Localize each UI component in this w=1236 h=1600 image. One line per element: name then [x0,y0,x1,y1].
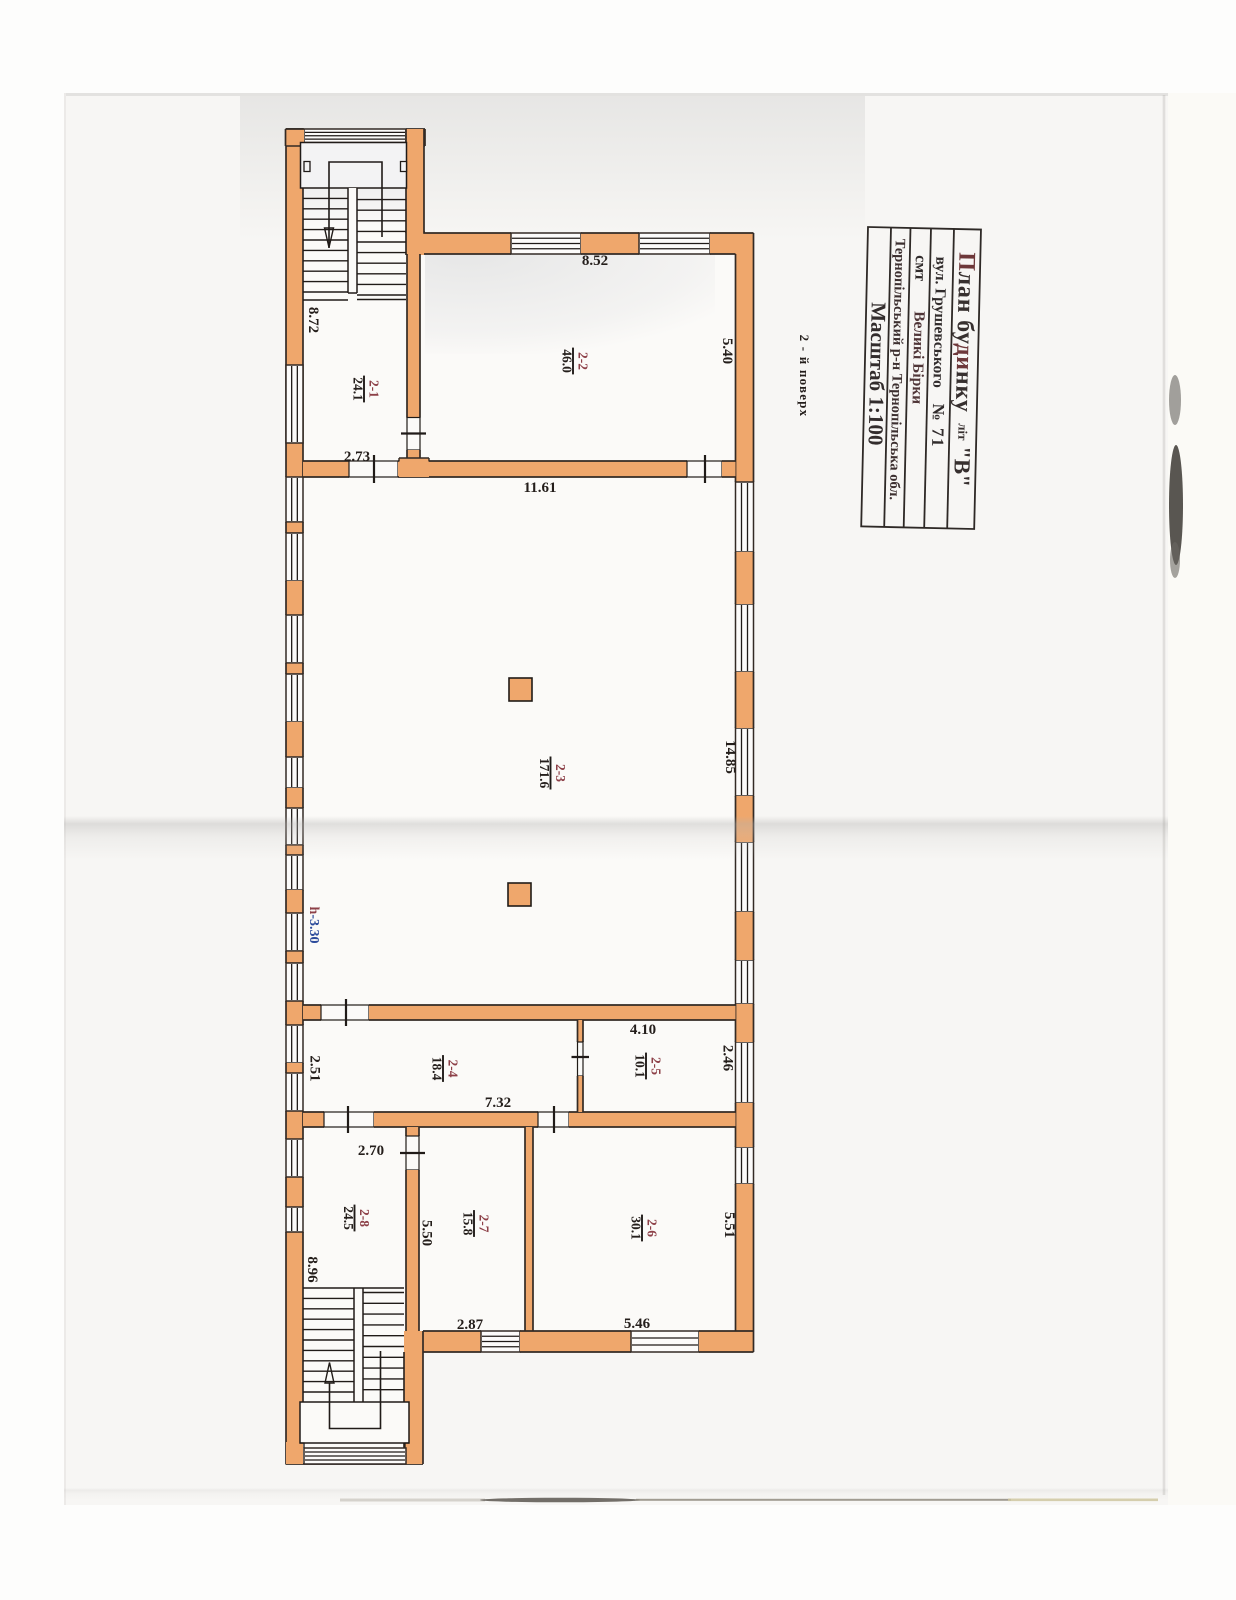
svg-text:2.73: 2.73 [344,449,370,465]
svg-text:План будинку: План будинку [950,252,980,413]
svg-text:8.96: 8.96 [304,1256,320,1283]
svg-text:14.85: 14.85 [722,740,738,774]
svg-text:15.8: 15.8 [461,1212,476,1236]
svg-text:2-5: 2-5 [649,1057,664,1075]
svg-text:5.46: 5.46 [624,1316,651,1332]
svg-text:вул. Грушевського: вул. Грушевського [929,256,949,388]
svg-text:8.72: 8.72 [305,307,321,333]
svg-text:2-2: 2-2 [576,352,591,370]
svg-text:2.46: 2.46 [720,1045,736,1072]
svg-text:2.51: 2.51 [307,1055,323,1081]
svg-text:смт: смт [911,255,929,281]
svg-text:8.52: 8.52 [582,253,608,269]
svg-text:46.0: 46.0 [560,349,575,373]
svg-text:5.50: 5.50 [419,1220,435,1246]
svg-text:"В": "В" [949,446,975,487]
svg-text:24.5: 24.5 [341,1206,356,1230]
svg-text:№ 71: № 71 [928,403,948,448]
svg-text:2-3: 2-3 [553,764,568,782]
svg-text:5.51: 5.51 [721,1212,737,1238]
svg-text:18.4: 18.4 [430,1057,445,1081]
svg-text:2-7: 2-7 [477,1215,492,1233]
svg-text:30.1: 30.1 [629,1216,644,1240]
svg-text:2-8: 2-8 [357,1209,372,1227]
svg-text:Великі Бірки: Великі Бірки [908,311,927,404]
svg-text:Масштаб 1:100: Масштаб 1:100 [864,302,891,446]
svg-text:171.6: 171.6 [537,758,552,789]
svg-text:10.1: 10.1 [633,1054,648,1078]
svg-text:2-6: 2-6 [645,1219,660,1237]
svg-text:літ: літ [955,423,970,441]
svg-text:4.10: 4.10 [630,1022,656,1038]
svg-text:7.32: 7.32 [485,1095,511,1111]
svg-text:2 - й поверх: 2 - й поверх [797,335,812,418]
svg-text:11.61: 11.61 [524,480,557,496]
svg-text:2.87: 2.87 [457,1317,484,1333]
svg-text:24.1: 24.1 [351,377,366,401]
svg-text:5.40: 5.40 [719,338,735,364]
svg-text:2-4: 2-4 [446,1060,461,1078]
svg-text:2-1: 2-1 [367,380,382,398]
svg-text:h-3.30: h-3.30 [306,907,321,944]
svg-text:2.70: 2.70 [358,1143,384,1159]
